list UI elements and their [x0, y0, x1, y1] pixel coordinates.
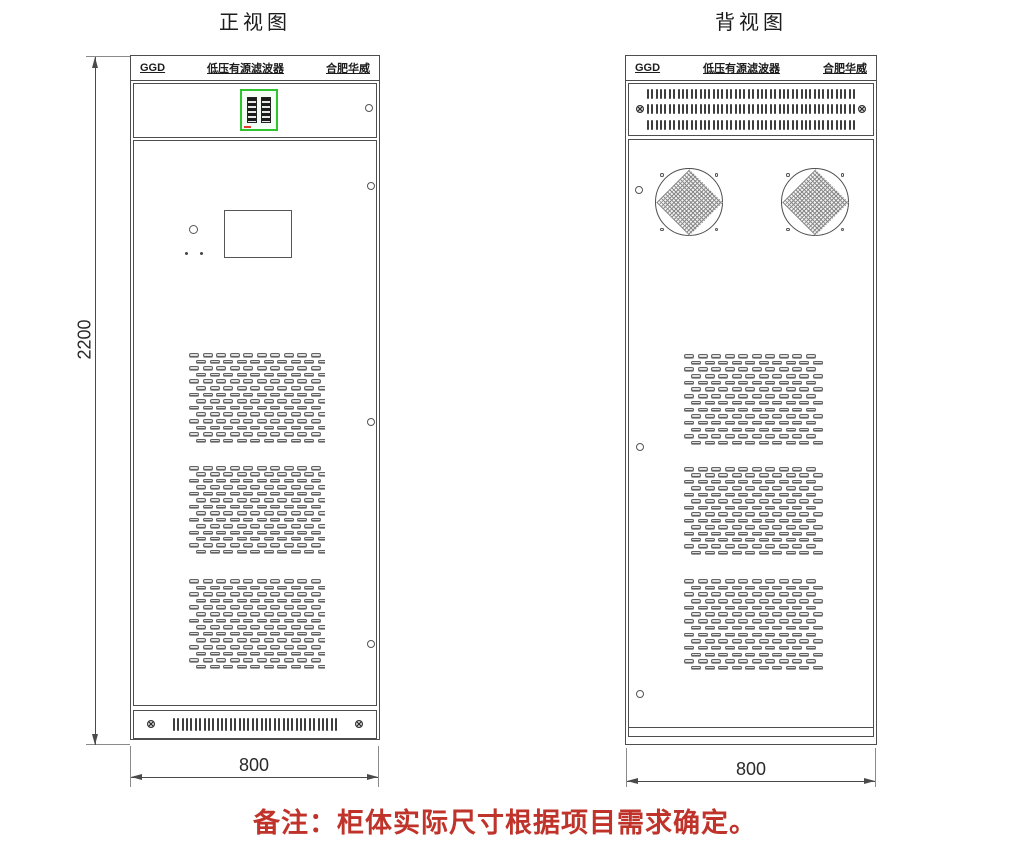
louver-row [189, 592, 325, 596]
louver-row [684, 659, 824, 663]
louver-slot [698, 646, 708, 650]
vent-slot [660, 89, 662, 99]
louver-slot [311, 419, 321, 423]
louver-slot [738, 367, 748, 371]
louver-slot [304, 485, 314, 489]
louver-slot [765, 381, 775, 385]
louver-slot [759, 626, 769, 630]
louver-slot [196, 426, 206, 430]
louver-row [684, 646, 824, 650]
louver-row [196, 498, 325, 502]
louver-slot [291, 612, 301, 616]
vent-slot [647, 89, 649, 99]
louver-slot [304, 412, 314, 416]
louver-slot [691, 387, 701, 391]
louver-slot [270, 658, 280, 662]
louver-slot [725, 434, 735, 438]
louver-slot [243, 366, 253, 370]
louver-slot [799, 653, 809, 657]
louver-row [196, 399, 325, 403]
vent-slot [708, 120, 710, 130]
louver-slot [752, 592, 762, 596]
vent-slot-row [167, 718, 343, 731]
louver-row [196, 599, 325, 603]
louver-slot [237, 373, 247, 377]
louver-slot [264, 665, 274, 669]
louver-slot [806, 579, 816, 583]
louver-slot [284, 592, 294, 596]
louver-row [684, 619, 824, 623]
louver-slot [725, 408, 735, 412]
louver-slot [318, 498, 326, 502]
louver-row [684, 544, 824, 548]
louver-slot [304, 360, 314, 364]
louver-slot [230, 531, 240, 535]
louver-slot [792, 421, 802, 425]
louver-slot [698, 579, 708, 583]
louver-slot [711, 606, 721, 610]
vent-slot [726, 120, 728, 130]
vent-slot [177, 718, 179, 731]
vent-slot [770, 89, 772, 99]
top-vent-slots [649, 86, 853, 133]
vent-slot [283, 718, 285, 731]
louver-slot [705, 653, 715, 657]
louver-slot [264, 426, 274, 430]
vent-slot [840, 104, 842, 114]
louver-slot [705, 361, 715, 365]
louver-slot [745, 586, 755, 590]
louver-slot [223, 537, 233, 541]
louver-slot [270, 543, 280, 547]
louver-slot [698, 421, 708, 425]
louver-slot [698, 544, 708, 548]
louver-slot [243, 605, 253, 609]
vent-slot [726, 104, 728, 114]
vent-slot [792, 104, 794, 114]
louver-slot [210, 511, 220, 515]
vent-slot [700, 104, 702, 114]
louver-slot [237, 524, 247, 528]
louver-slot [698, 367, 708, 371]
louver-slot [765, 532, 775, 536]
back-bottom-strip [629, 727, 873, 736]
louver-slot [243, 419, 253, 423]
louver-slot [243, 619, 253, 623]
vent-slot [735, 104, 737, 114]
louver-slot [779, 544, 789, 548]
vent-slot [849, 104, 851, 114]
louver-slot [270, 379, 280, 383]
louver-slot [799, 512, 809, 516]
louver-slot [759, 473, 769, 477]
louver-slot [732, 551, 742, 555]
louver-row [189, 632, 325, 636]
louver-slot [691, 626, 701, 630]
vent-slot [287, 718, 289, 731]
louver-slot [806, 480, 816, 484]
louver-slot [765, 434, 775, 438]
louver-row [691, 473, 824, 477]
louver-slot [752, 493, 762, 497]
louver-slot [691, 374, 701, 378]
vent-slot [225, 718, 227, 731]
louver-slot [698, 434, 708, 438]
louver-row [189, 579, 325, 583]
louver-row [691, 653, 824, 657]
vent-slot [827, 120, 829, 130]
louver-slot [270, 492, 280, 496]
vent-slot [669, 104, 671, 114]
louver-slot [691, 666, 701, 670]
louver-slot [684, 646, 694, 650]
louver-slot [223, 373, 233, 377]
louver-slot [264, 472, 274, 476]
louver-slot [718, 441, 728, 445]
louver-slot [243, 531, 253, 535]
louver-row [196, 550, 325, 554]
louver-slot [725, 493, 735, 497]
louver-slot [297, 658, 307, 662]
vent-slot [647, 120, 649, 130]
louver-slot [772, 486, 782, 490]
louver-slot [772, 473, 782, 477]
fan-screw-dot [786, 228, 790, 232]
louver-slot [799, 586, 809, 590]
louver-slot [711, 421, 721, 425]
louver-row [189, 366, 325, 370]
louver-row [196, 412, 325, 416]
louver-slot [311, 353, 321, 357]
louver-slot [243, 505, 253, 509]
vent-slot [708, 89, 710, 99]
louver-slot [725, 506, 735, 510]
dimension-arrow [92, 57, 98, 68]
louver-slot [216, 605, 226, 609]
louver-slot [691, 612, 701, 616]
louver-slot [813, 414, 823, 418]
louver-slot [684, 659, 694, 663]
louver-row [196, 665, 325, 669]
louver-slot [786, 512, 796, 516]
louver-slot [759, 538, 769, 542]
vent-slot [735, 89, 737, 99]
louver-slot [196, 485, 206, 489]
louver-slot [237, 612, 247, 616]
screw-icon [147, 720, 155, 728]
louver-slot [210, 485, 220, 489]
vent-slot [190, 718, 192, 731]
louver-slot [196, 386, 206, 390]
louver-slot [270, 645, 280, 649]
dimension-line [131, 777, 378, 778]
vent-slot [726, 89, 728, 99]
louver-slot [718, 612, 728, 616]
louver-slot [297, 353, 307, 357]
louver-slot [765, 646, 775, 650]
louver-slot [705, 612, 715, 616]
louver-slot [738, 646, 748, 650]
louver-slot [718, 486, 728, 490]
louver-slot [311, 492, 321, 496]
louver-slot [243, 632, 253, 636]
louver-slot [799, 441, 809, 445]
vent-slot [212, 718, 214, 731]
louver-slot [318, 599, 326, 603]
louver-slot [732, 653, 742, 657]
louver-slot [318, 426, 326, 430]
louver-vent-group [189, 353, 325, 443]
louver-slot [792, 367, 802, 371]
louver-slot [765, 506, 775, 510]
louver-row [196, 612, 325, 616]
vent-slot [673, 89, 675, 99]
louver-slot [772, 428, 782, 432]
louver-slot [705, 666, 715, 670]
louver-slot [318, 511, 326, 515]
louver-slot [196, 665, 206, 669]
louver-slot [237, 586, 247, 590]
louver-slot [196, 412, 206, 416]
louver-row [691, 486, 824, 490]
vent-slot [695, 104, 697, 114]
louver-slot [806, 544, 816, 548]
louver-slot [738, 394, 748, 398]
louver-slot [270, 579, 280, 583]
louver-slot [196, 373, 206, 377]
louver-slot [304, 599, 314, 603]
base-vent-slots [167, 711, 343, 738]
louver-row [691, 551, 824, 555]
louver-slot [257, 658, 267, 662]
louver-slot [250, 399, 260, 403]
louver-slot [270, 406, 280, 410]
louver-slot [284, 353, 294, 357]
louver-slot [223, 426, 233, 430]
vent-slot [809, 120, 811, 130]
louver-slot [806, 659, 816, 663]
louver-slot [772, 512, 782, 516]
louver-slot [277, 498, 287, 502]
louver-slot [284, 579, 294, 583]
louver-slot [738, 519, 748, 523]
louver-slot [732, 612, 742, 616]
louver-slot [799, 473, 809, 477]
louver-slot [264, 638, 274, 642]
louver-slot [237, 412, 247, 416]
louver-slot [223, 665, 233, 669]
louver-slot [257, 543, 267, 547]
louver-slot [759, 486, 769, 490]
louver-slot [711, 659, 721, 663]
louver-slot [813, 666, 823, 670]
louver-slot [216, 492, 226, 496]
louver-slot [210, 524, 220, 528]
louver-slot [210, 652, 220, 656]
louver-slot [759, 639, 769, 643]
vent-slot [261, 718, 263, 731]
vent-slot [774, 104, 776, 114]
louver-slot [196, 586, 206, 590]
louver-slot [210, 412, 220, 416]
vent-slot [664, 89, 666, 99]
louver-slot [277, 472, 287, 476]
louver-slot [765, 354, 775, 358]
vent-slot [256, 718, 258, 731]
louver-slot [792, 519, 802, 523]
louver-slot [318, 665, 326, 669]
louver-slot [311, 543, 321, 547]
vent-slot-row [649, 89, 853, 99]
louver-slot [792, 532, 802, 536]
louver-slot [270, 353, 280, 357]
louver-slot [792, 480, 802, 484]
louver-slot [792, 646, 802, 650]
front-view-title: 正视图 [130, 6, 380, 35]
vent-slot [844, 104, 846, 114]
height-dimension: 2200 [75, 295, 96, 385]
vent-slot [335, 718, 337, 731]
vent-slot [770, 120, 772, 130]
louver-slot [318, 412, 326, 416]
vent-slot [660, 120, 662, 130]
louver-slot [264, 412, 274, 416]
louver-slot [759, 428, 769, 432]
louver-slot [318, 386, 326, 390]
louver-slot [189, 543, 199, 547]
louver-slot [732, 486, 742, 490]
louver-slot [752, 532, 762, 536]
louver-slot [759, 612, 769, 616]
vent-slot [805, 89, 807, 99]
vent-slot [182, 718, 184, 731]
vent-slot [252, 718, 254, 731]
vent-slot [739, 120, 741, 130]
louver-slot [711, 633, 721, 637]
louver-slot [799, 612, 809, 616]
louver-slot [813, 512, 823, 516]
louver-slot [257, 353, 267, 357]
louver-slot [813, 525, 823, 529]
louver-slot [264, 625, 274, 629]
louver-vent-group [189, 579, 325, 669]
louver-slot [813, 599, 823, 603]
louver-slot [691, 361, 701, 365]
louver-slot [799, 486, 809, 490]
louver-slot [732, 512, 742, 516]
louver-slot [779, 646, 789, 650]
louver-slot [210, 665, 220, 669]
vent-slot [853, 104, 855, 114]
louver-slot [799, 525, 809, 529]
louver-slot [711, 367, 721, 371]
louver-slot [230, 379, 240, 383]
louver-slot [284, 645, 294, 649]
louver-slot [745, 512, 755, 516]
vent-slot [743, 120, 745, 130]
louver-slot [772, 374, 782, 378]
louver-slot [196, 511, 206, 515]
louver-slot [318, 625, 326, 629]
louver-slot [765, 421, 775, 425]
louver-row [196, 511, 325, 515]
louver-slot [284, 619, 294, 623]
louver-slot [725, 592, 735, 596]
louver-slot [270, 479, 280, 483]
louver-slot [311, 466, 321, 470]
louver-slot [684, 544, 694, 548]
vent-slot [195, 718, 197, 731]
louver-slot [711, 532, 721, 536]
louver-slot [230, 543, 240, 547]
louver-slot [196, 638, 206, 642]
louver-slot [210, 586, 220, 590]
louver-slot [210, 599, 220, 603]
louver-slot [270, 419, 280, 423]
louver-slot [705, 538, 715, 542]
louver-slot [684, 506, 694, 510]
louver-slot [732, 626, 742, 630]
louver-slot [792, 467, 802, 471]
louver-slot [684, 519, 694, 523]
vent-slot [686, 104, 688, 114]
louver-slot [297, 393, 307, 397]
vent-slot [822, 104, 824, 114]
vent-slot [269, 718, 271, 731]
louver-slot [772, 653, 782, 657]
vent-slot [761, 104, 763, 114]
louver-row [196, 586, 325, 590]
louver-slot [216, 353, 226, 357]
louver-row [189, 432, 325, 436]
louver-slot [691, 639, 701, 643]
louver-slot [304, 498, 314, 502]
louver-slot [277, 360, 287, 364]
louver-slot [786, 586, 796, 590]
louver-slot [250, 537, 260, 541]
louver-slot [270, 632, 280, 636]
louver-slot [216, 419, 226, 423]
louver-slot [799, 551, 809, 555]
louver-slot [257, 579, 267, 583]
louver-slot [684, 480, 694, 484]
louver-slot [684, 381, 694, 385]
louver-slot [189, 406, 199, 410]
louver-slot [223, 485, 233, 489]
louver-slot [196, 498, 206, 502]
door-hole [636, 443, 644, 451]
louver-slot [189, 605, 199, 609]
louver-slot [277, 373, 287, 377]
louver-slot [786, 401, 796, 405]
louver-slot [237, 652, 247, 656]
louver-slot [230, 466, 240, 470]
vent-slot [664, 104, 666, 114]
louver-slot [318, 638, 326, 642]
louver-slot [203, 393, 213, 397]
louver-slot [759, 666, 769, 670]
louver-slot [230, 658, 240, 662]
louver-row [684, 633, 824, 637]
louver-slot [297, 632, 307, 636]
vent-slot [743, 104, 745, 114]
louver-slot [718, 653, 728, 657]
louver-slot [270, 619, 280, 623]
dimension-line [95, 57, 96, 745]
front-top-panel [133, 83, 377, 138]
louver-slot [264, 386, 274, 390]
vent-slot [243, 718, 245, 731]
